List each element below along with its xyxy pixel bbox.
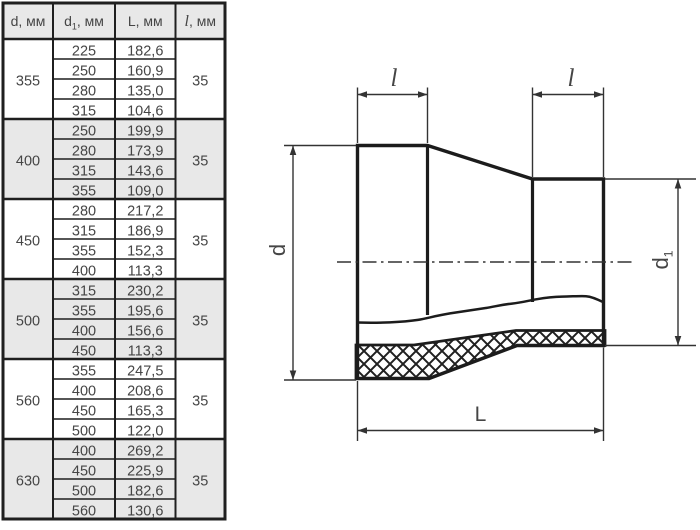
svg-text:450: 450 — [72, 403, 96, 419]
svg-text:247,5: 247,5 — [127, 363, 163, 379]
svg-text:L, мм: L, мм — [128, 13, 163, 29]
svg-text:35: 35 — [192, 233, 208, 249]
svg-text:35: 35 — [192, 473, 208, 489]
svg-text:208,6: 208,6 — [127, 383, 163, 399]
svg-text:104,6: 104,6 — [127, 103, 163, 119]
svg-text:L: L — [475, 403, 487, 426]
svg-text:280: 280 — [72, 203, 96, 219]
svg-text:152,3: 152,3 — [127, 243, 163, 259]
svg-text:182,6: 182,6 — [127, 43, 163, 59]
svg-text:35: 35 — [192, 393, 208, 409]
svg-text:250: 250 — [72, 63, 96, 79]
svg-text:230,2: 230,2 — [127, 283, 163, 299]
svg-text:630: 630 — [16, 473, 40, 489]
svg-text:217,2: 217,2 — [127, 203, 163, 219]
svg-text:35: 35 — [192, 73, 208, 89]
svg-text:225,9: 225,9 — [127, 463, 163, 479]
svg-text:186,9: 186,9 — [127, 223, 163, 239]
svg-text:143,6: 143,6 — [127, 163, 163, 179]
svg-text:173,9: 173,9 — [127, 143, 163, 159]
svg-text:500: 500 — [72, 423, 96, 439]
svg-text:355: 355 — [72, 183, 96, 199]
svg-text:355: 355 — [72, 303, 96, 319]
svg-text:109,0: 109,0 — [127, 183, 163, 199]
svg-text:355: 355 — [16, 73, 40, 89]
svg-text:400: 400 — [72, 443, 96, 459]
svg-text:113,3: 113,3 — [128, 263, 163, 279]
svg-text:160,9: 160,9 — [127, 63, 163, 79]
svg-text:355: 355 — [72, 243, 96, 259]
svg-text:269,2: 269,2 — [127, 443, 163, 459]
svg-text:195,6: 195,6 — [127, 303, 163, 319]
svg-text:165,3: 165,3 — [127, 403, 163, 419]
svg-text:355: 355 — [72, 363, 96, 379]
svg-text:d, мм: d, мм — [11, 13, 46, 29]
svg-text:315: 315 — [72, 163, 96, 179]
svg-text:35: 35 — [192, 153, 208, 169]
svg-text:280: 280 — [72, 83, 96, 99]
svg-text:250: 250 — [72, 123, 96, 139]
svg-text:122,0: 122,0 — [127, 423, 163, 439]
svg-text:225: 225 — [72, 43, 96, 59]
svg-text:l, мм: l, мм — [185, 13, 216, 30]
svg-text:135,0: 135,0 — [127, 83, 163, 99]
svg-text:d1, мм: d1, мм — [64, 13, 104, 32]
svg-text:315: 315 — [72, 223, 96, 239]
svg-text:280: 280 — [72, 143, 96, 159]
svg-text:156,6: 156,6 — [127, 323, 163, 339]
svg-text:113,3: 113,3 — [128, 343, 163, 359]
svg-text:199,9: 199,9 — [127, 123, 163, 139]
svg-text:560: 560 — [16, 393, 40, 409]
svg-text:450: 450 — [72, 343, 96, 359]
svg-text:560: 560 — [72, 503, 96, 519]
svg-text:450: 450 — [16, 233, 40, 249]
svg-text:500: 500 — [72, 483, 96, 499]
svg-text:182,6: 182,6 — [127, 483, 163, 499]
svg-text:d: d — [265, 244, 290, 256]
svg-text:315: 315 — [72, 283, 96, 299]
svg-text:450: 450 — [72, 463, 96, 479]
svg-text:130,6: 130,6 — [127, 503, 163, 519]
svg-text:35: 35 — [192, 313, 208, 329]
svg-text:l: l — [568, 65, 575, 92]
svg-text:400: 400 — [72, 383, 96, 399]
svg-text:400: 400 — [72, 263, 96, 279]
svg-text:l: l — [391, 65, 398, 92]
svg-text:500: 500 — [16, 313, 40, 329]
svg-text:400: 400 — [16, 153, 40, 169]
svg-text:400: 400 — [72, 323, 96, 339]
svg-text:315: 315 — [72, 103, 96, 119]
